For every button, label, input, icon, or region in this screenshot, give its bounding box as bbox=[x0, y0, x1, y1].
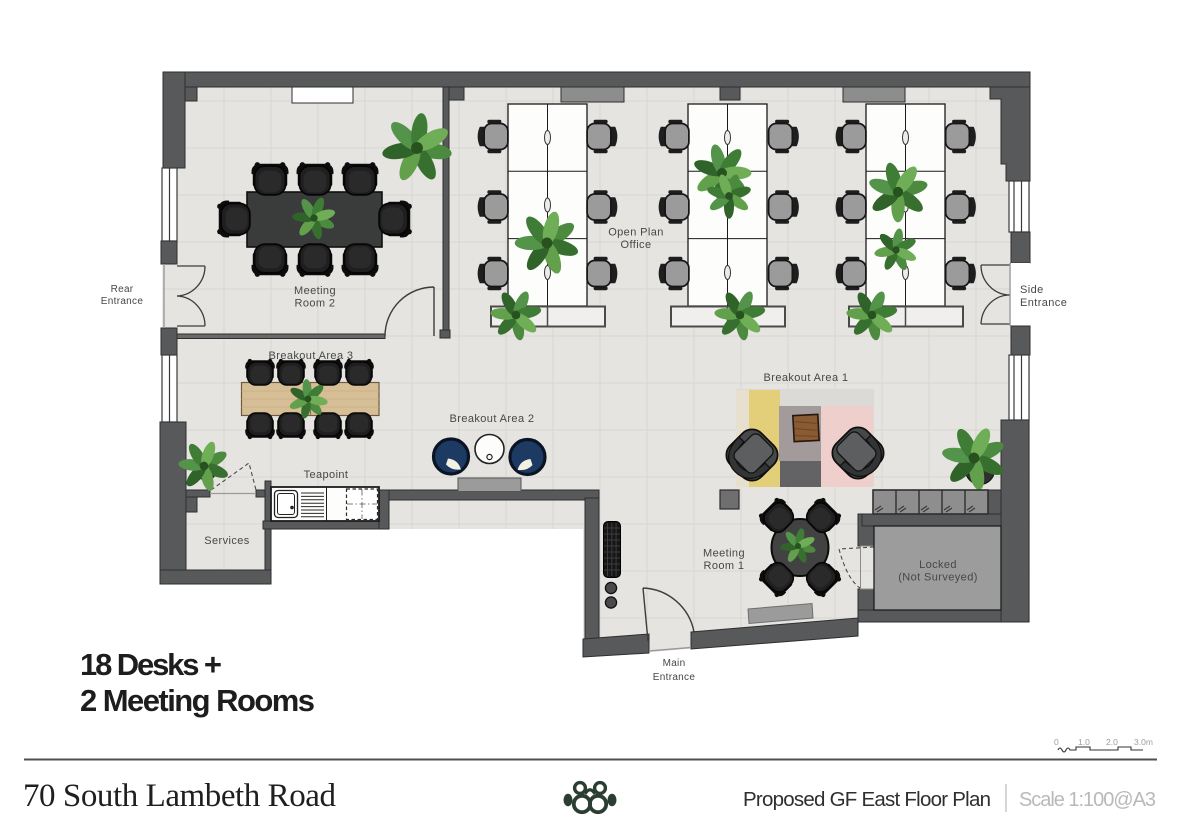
svg-text:Breakout Area 3: Breakout Area 3 bbox=[269, 350, 354, 362]
svg-text:Room 1: Room 1 bbox=[704, 560, 745, 572]
svg-text:2 Meeting Rooms: 2 Meeting Rooms bbox=[80, 683, 315, 718]
svg-text:(Not Surveyed): (Not Surveyed) bbox=[898, 572, 978, 584]
svg-text:Rear: Rear bbox=[111, 284, 134, 295]
svg-text:Main: Main bbox=[663, 658, 686, 669]
svg-text:3.0m: 3.0m bbox=[1134, 737, 1153, 747]
svg-text:18 Desks +: 18 Desks + bbox=[80, 647, 222, 682]
svg-text:Entrance: Entrance bbox=[101, 296, 144, 307]
svg-text:Entrance: Entrance bbox=[1020, 297, 1067, 309]
svg-text:Teapoint: Teapoint bbox=[304, 469, 349, 481]
svg-text:Room 2: Room 2 bbox=[295, 298, 336, 310]
svg-text:Proposed GF East Floor Plan: Proposed GF East Floor Plan bbox=[743, 788, 991, 811]
svg-text:Entrance: Entrance bbox=[653, 672, 696, 683]
svg-text:1.0: 1.0 bbox=[1078, 737, 1090, 747]
svg-text:Open Plan: Open Plan bbox=[608, 227, 664, 239]
svg-text:Scale 1:100@A3: Scale 1:100@A3 bbox=[1019, 789, 1156, 811]
svg-text:Locked: Locked bbox=[919, 559, 957, 571]
svg-text:Breakout Area 1: Breakout Area 1 bbox=[764, 372, 849, 384]
svg-text:Side: Side bbox=[1020, 284, 1044, 296]
svg-text:Meeting: Meeting bbox=[294, 285, 336, 297]
svg-text:Office: Office bbox=[621, 239, 652, 251]
svg-text:70 South Lambeth Road: 70 South Lambeth Road bbox=[23, 778, 337, 814]
svg-text:2.0: 2.0 bbox=[1106, 737, 1118, 747]
svg-text:Meeting: Meeting bbox=[703, 548, 745, 560]
svg-text:Breakout Area 2: Breakout Area 2 bbox=[450, 413, 535, 425]
svg-text:Services: Services bbox=[204, 535, 249, 547]
svg-text:0: 0 bbox=[1054, 737, 1059, 747]
